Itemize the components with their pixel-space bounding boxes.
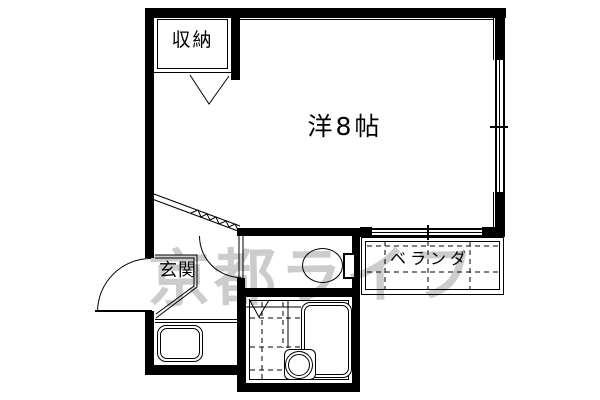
top-wall-inner-line (233, 19, 493, 20)
closet-label: 収納 (153, 31, 232, 50)
wall-right-upper (495, 8, 505, 60)
window-right-tick (490, 126, 508, 128)
counter-edge-line2 (155, 322, 238, 323)
balcony-window-right-block (483, 227, 504, 237)
counter-edge-line1 (155, 319, 238, 320)
main-room-label: 洋8帖 (265, 114, 425, 139)
bath-bottom-wall (237, 384, 360, 392)
closet-side-wall (231, 10, 240, 80)
right-wall-inner-line-lower (493, 192, 494, 227)
right-wall-inner-line-upper (493, 18, 494, 60)
kitchen-sink-inner (160, 328, 200, 359)
room-door-diagonal (152, 194, 240, 231)
floorplan-canvas: 収納 洋8帖 玄関 ベランダ 京都ライフ (0, 0, 600, 400)
entrance-door-leaf (95, 310, 152, 312)
entrance-door-arc (97, 258, 151, 312)
watermark: 京都ライフ (147, 243, 478, 311)
wall-bottom-left (145, 365, 245, 375)
closet-door-symbol (190, 75, 229, 104)
balcony-window-left-block (360, 227, 372, 237)
toilet-top-wall (237, 228, 360, 236)
wash-basin-bowl-inner (288, 354, 310, 376)
